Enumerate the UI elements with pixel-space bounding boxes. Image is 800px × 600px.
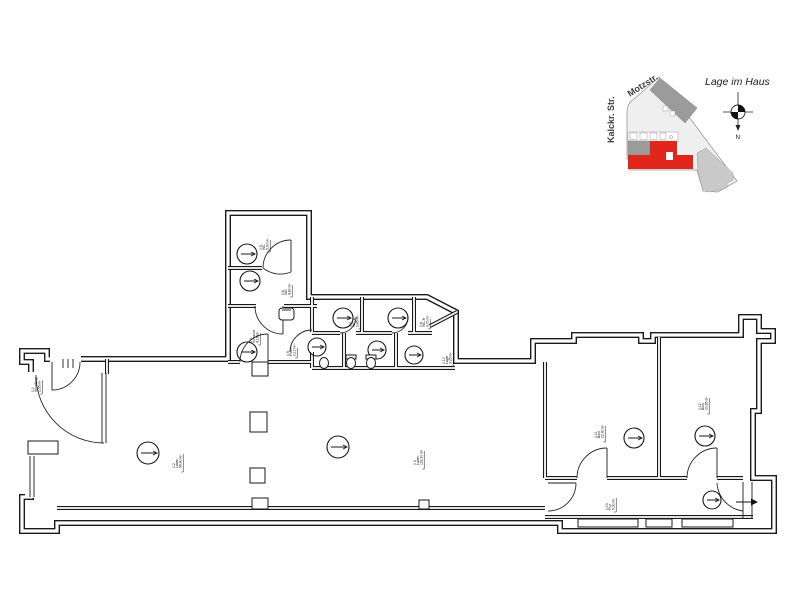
sill-niches bbox=[578, 519, 733, 527]
compass-icon: N bbox=[723, 92, 753, 141]
band-marker-dot bbox=[669, 135, 672, 138]
unit-notch bbox=[666, 152, 673, 160]
svg-text:2,10 m²: 2,10 m² bbox=[293, 344, 297, 356]
room-stamp: 0.4 Vorraum 4,15 m² bbox=[249, 330, 260, 345]
room-stamp: 0.2 Laden 96,40 m² bbox=[172, 454, 183, 472]
room-stamp: 0.7 WC-D 3,85 m² bbox=[349, 315, 360, 329]
site-plan-title: Lage im Haus bbox=[705, 76, 771, 88]
svg-text:2,95 m²: 2,95 m² bbox=[38, 380, 42, 392]
band-window bbox=[630, 133, 637, 140]
svg-text:96,40 m²: 96,40 m² bbox=[179, 454, 183, 468]
door-opening bbox=[50, 355, 81, 364]
site-plan: Motzstr. Kalckr. Str. Lage im Haus N bbox=[606, 72, 771, 192]
pillar bbox=[250, 412, 267, 432]
door-swing bbox=[577, 448, 717, 478]
svg-text:4,15 m²: 4,15 m² bbox=[256, 331, 260, 343]
pillar bbox=[250, 468, 265, 483]
band-window bbox=[650, 133, 657, 140]
floor-plan: 0.1 Windfang 2,95 m² 0.2 Laden 96,40 m² … bbox=[22, 213, 774, 531]
svg-text:3,70 m²: 3,70 m² bbox=[426, 315, 430, 327]
room-stamp: 0.12 Büro 20,85 m² bbox=[698, 396, 709, 414]
pillar-row bbox=[250, 362, 429, 509]
north-label: N bbox=[736, 134, 741, 141]
toilet-symbol bbox=[320, 355, 377, 369]
wall-stub bbox=[252, 498, 268, 509]
room-stamp: 0.11 Büro 22,40 m² bbox=[594, 424, 605, 442]
room-stamp: 0.9 Putzr. 2,10 m² bbox=[286, 344, 297, 358]
building-annex-dark bbox=[628, 141, 650, 155]
svg-text:9,30 m²: 9,30 m² bbox=[612, 498, 616, 510]
entrance-door-leaf bbox=[102, 373, 106, 443]
svg-text:4,80 m²: 4,80 m² bbox=[288, 283, 292, 295]
entry-arrow-icon bbox=[751, 499, 758, 506]
room-stamp: 0.6 WC 4,80 m² bbox=[281, 283, 292, 297]
entrance-pillar bbox=[28, 441, 58, 454]
svg-text:20,85 m²: 20,85 m² bbox=[705, 396, 709, 410]
door-swing bbox=[52, 362, 80, 390]
drawing-canvas: Motzstr. Kalckr. Str. Lage im Haus N bbox=[0, 0, 800, 600]
svg-text:3,25 m²: 3,25 m² bbox=[449, 352, 453, 364]
svg-text:5,60 m²: 5,60 m² bbox=[266, 238, 270, 250]
room-stamp: 0.10 Lager 3,25 m² bbox=[442, 352, 453, 366]
reference-symbols bbox=[137, 426, 721, 509]
floor-plan-sheet: Motzstr. Kalckr. Str. Lage im Haus N bbox=[0, 0, 800, 600]
room-stamp: 0.5 WC 5,60 m² bbox=[259, 238, 270, 252]
building-window bbox=[670, 111, 675, 116]
building-window bbox=[663, 106, 668, 111]
svg-text:118,30 m²: 118,30 m² bbox=[420, 449, 424, 465]
street-label-kalckreuthstr: Kalckr. Str. bbox=[606, 96, 616, 143]
svg-text:3,85 m²: 3,85 m² bbox=[356, 315, 360, 327]
window-opening bbox=[25, 454, 37, 498]
room-stamp: 0.13 Flur 9,30 m² bbox=[605, 498, 616, 512]
band-window bbox=[660, 133, 666, 140]
door-swing bbox=[548, 483, 576, 511]
wall-stub bbox=[252, 362, 268, 376]
wall-stub bbox=[419, 500, 429, 509]
entry-door bbox=[717, 482, 758, 519]
band-window bbox=[640, 133, 647, 140]
compass-arrowhead bbox=[736, 125, 741, 131]
svg-text:22,40 m²: 22,40 m² bbox=[601, 424, 605, 438]
room-stamp: 0.3 Laden 118,30 m² bbox=[413, 449, 424, 469]
outer-walls bbox=[22, 213, 774, 531]
room-stamp: 0.8 WC-H 3,70 m² bbox=[419, 315, 430, 329]
interior-walls bbox=[57, 268, 753, 517]
entrance-door-swing bbox=[36, 375, 104, 443]
